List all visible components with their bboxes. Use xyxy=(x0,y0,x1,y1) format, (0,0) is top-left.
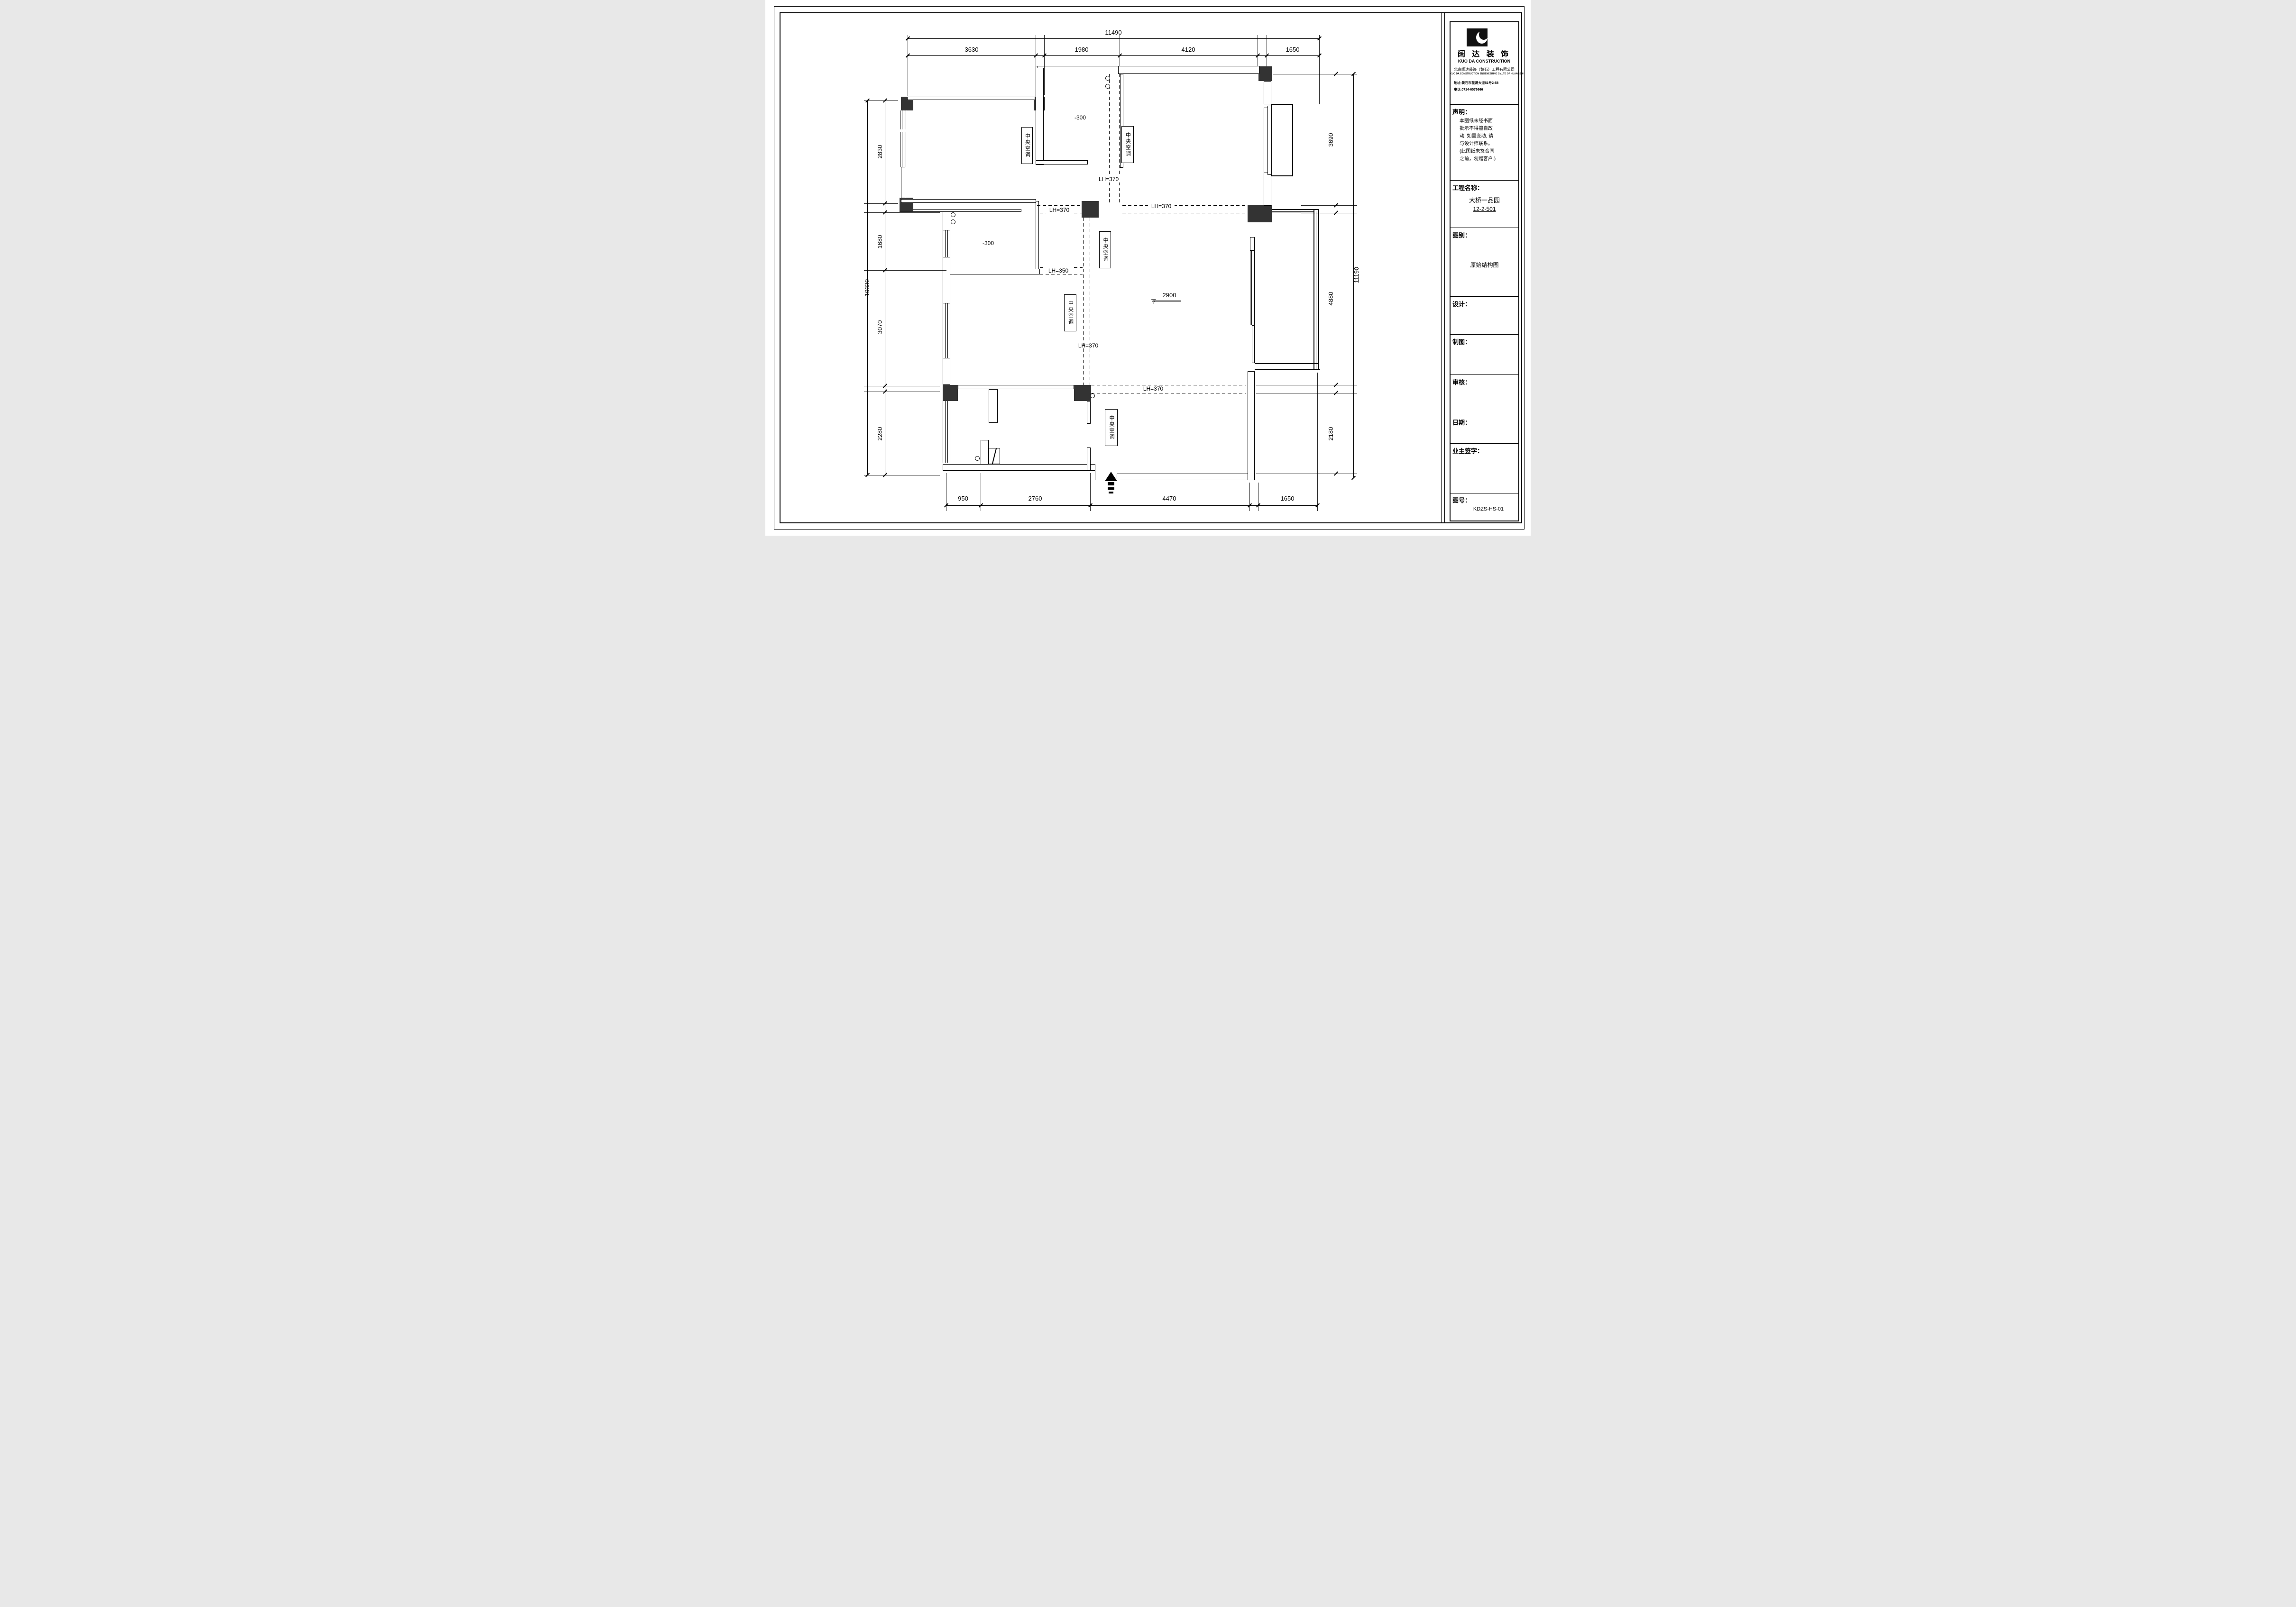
level-note: -300 xyxy=(977,240,1000,247)
ac-label: 中央空调 xyxy=(1021,127,1033,164)
ac-label: 中央空调 xyxy=(1121,126,1134,163)
dim-text: 3070 xyxy=(877,313,883,341)
dashed-line xyxy=(1091,385,1246,385)
dim-text: 10330 xyxy=(864,274,871,302)
wall xyxy=(943,257,950,303)
dim-text: 1680 xyxy=(877,228,883,256)
dashed-line xyxy=(1109,74,1110,205)
lintel-label: LH=370 xyxy=(1148,203,1175,210)
dim-text: 3690 xyxy=(1328,126,1334,154)
lintel-label: LH=370 xyxy=(1075,342,1102,349)
checker-label: 审核： xyxy=(1452,377,1471,386)
balcony-line xyxy=(1313,209,1314,370)
dashed-line xyxy=(1122,205,1248,206)
ac-label: 中央空调 xyxy=(1105,409,1118,446)
wall xyxy=(1087,401,1091,424)
balcony-line xyxy=(1272,211,1313,212)
column xyxy=(1074,385,1091,401)
titleblock-separator xyxy=(1441,12,1442,523)
company-name-cn: 阔 达 装 饰 xyxy=(1451,47,1517,59)
door-pivot-icon xyxy=(1105,84,1110,89)
project-name: 大桥一品园 xyxy=(1450,195,1519,204)
owner-signature-label: 业主签字： xyxy=(1452,446,1483,455)
dim-text: 11190 xyxy=(1353,261,1360,289)
door-pivot-icon xyxy=(951,219,955,224)
window xyxy=(943,401,950,463)
project-number: 12-2-501 xyxy=(1450,206,1519,212)
dim-text: 4880 xyxy=(1328,284,1334,313)
dim-text: 3630 xyxy=(957,46,986,53)
wall xyxy=(958,385,1074,389)
dim-line xyxy=(1336,74,1336,474)
dashed-line xyxy=(1091,393,1246,393)
dim-text: 4470 xyxy=(1155,495,1184,502)
drawing-sheet: 中央空调 中央空调 中央空调 中央空调 中央空调 LH=370 LH=370 L… xyxy=(765,0,1531,536)
wall xyxy=(1248,371,1255,480)
wall-line xyxy=(1095,464,1095,480)
entrance-arrow-icon xyxy=(1109,492,1113,493)
window xyxy=(1250,251,1255,325)
dim-text: 2180 xyxy=(1328,420,1334,448)
wall xyxy=(949,269,1040,274)
window xyxy=(943,303,950,358)
ac-label: 中央空调 xyxy=(1099,231,1111,268)
company-full-en: KUO DA CONSTRUCTION ENGENEERING Co.LTD O… xyxy=(1450,73,1518,75)
dashed-line xyxy=(1040,274,1083,274)
window xyxy=(900,110,906,129)
entrance-arrow-icon xyxy=(1105,472,1117,481)
wall xyxy=(1252,325,1255,363)
statement-text: 本图纸未经书面 批示不得擅自改 动. 如需变动, 请 与设计师联系。 (此图纸未… xyxy=(1460,118,1516,163)
level-note: -300 xyxy=(1069,114,1092,121)
wall xyxy=(907,97,1035,100)
company-address: 地址:黄石市花湖大道51号2-58 xyxy=(1454,81,1517,85)
door-pivot-icon xyxy=(1090,393,1095,398)
column xyxy=(1082,201,1099,218)
wall xyxy=(1036,66,1044,165)
dim-text: 1650 xyxy=(1273,495,1302,502)
drawing-type: 原始结构图 xyxy=(1450,261,1519,269)
wall xyxy=(943,211,950,230)
date-label: 日期： xyxy=(1452,418,1471,427)
wall xyxy=(1264,172,1271,206)
door-pivot-icon xyxy=(951,212,955,217)
balcony-line xyxy=(1255,369,1320,370)
wall xyxy=(913,209,1021,212)
dim-line xyxy=(946,505,1317,506)
dim-line xyxy=(885,100,885,475)
balcony-line xyxy=(1318,209,1319,370)
designer-label: 设计： xyxy=(1452,299,1471,308)
wall xyxy=(1117,474,1255,480)
ac-label: 中央空调 xyxy=(1064,294,1076,331)
kuoda-logo xyxy=(1467,28,1488,46)
drawing-no-label: 图号： xyxy=(1452,495,1471,504)
column xyxy=(1248,205,1272,222)
window xyxy=(943,230,950,257)
dim-text: 2280 xyxy=(877,420,883,448)
bay-window xyxy=(1271,104,1293,176)
dim-text: 1650 xyxy=(1278,46,1307,53)
wall xyxy=(1038,66,1120,68)
level-mark-icon: ▽ xyxy=(1151,298,1156,304)
dim-text: 1980 xyxy=(1067,46,1096,53)
project-name-label: 工程名称： xyxy=(1452,183,1483,192)
titleblock-separator xyxy=(1444,12,1445,523)
drafter-label: 制图： xyxy=(1452,337,1471,346)
wall xyxy=(1118,66,1259,74)
wall xyxy=(901,199,1036,203)
ceiling-height-label: 2900 xyxy=(1156,292,1183,299)
door-pivot-icon xyxy=(1105,76,1110,81)
window xyxy=(900,132,906,167)
lintel-label: LH=370 xyxy=(1140,385,1166,392)
door-pivot-icon xyxy=(975,456,980,461)
company-phone: 电话:0714-6576666 xyxy=(1454,87,1517,92)
lintel-label: LH=350 xyxy=(1045,267,1072,274)
company-name-en: KUO DA CONSTRUCTION xyxy=(1451,59,1517,64)
balcony-line xyxy=(1316,211,1316,370)
wall xyxy=(943,358,950,385)
column xyxy=(943,385,958,401)
dim-text: 950 xyxy=(949,495,977,502)
statement-label: 声明： xyxy=(1452,107,1471,116)
wall xyxy=(1036,160,1088,164)
dashed-line xyxy=(1122,213,1248,213)
column xyxy=(1258,66,1272,81)
balcony-line xyxy=(1255,363,1319,364)
dim-text: 2830 xyxy=(877,137,883,166)
dim-text: 4120 xyxy=(1174,46,1203,53)
entrance-arrow-icon xyxy=(1108,482,1114,485)
entrance-arrow-icon xyxy=(1108,487,1114,490)
wall xyxy=(901,167,905,198)
company-full-cn: 北京阔达装饰（黄石）工程有限公司 xyxy=(1450,67,1518,72)
wall xyxy=(1087,447,1091,471)
dashed-line xyxy=(1083,218,1084,385)
drawing-type-label: 图别： xyxy=(1452,230,1471,239)
wall xyxy=(981,440,989,465)
lintel-label: LH=370 xyxy=(1046,207,1073,213)
wall xyxy=(1250,237,1255,251)
inner-border xyxy=(780,12,1522,523)
wall xyxy=(1036,201,1039,272)
dashed-line xyxy=(1119,74,1120,205)
dim-text: 11490 xyxy=(1099,29,1128,36)
dim-text: 2760 xyxy=(1021,495,1049,502)
level-mark-icon xyxy=(1153,301,1181,301)
dashed-line xyxy=(1090,218,1090,385)
dashed-line xyxy=(1037,205,1082,206)
wall xyxy=(989,389,998,423)
wall xyxy=(943,464,1095,471)
lintel-label: LH=370 xyxy=(1095,176,1122,183)
balcony-line xyxy=(1272,209,1319,210)
drawing-no: KDZS-HS-01 xyxy=(1458,506,1519,512)
wall xyxy=(1264,81,1271,104)
